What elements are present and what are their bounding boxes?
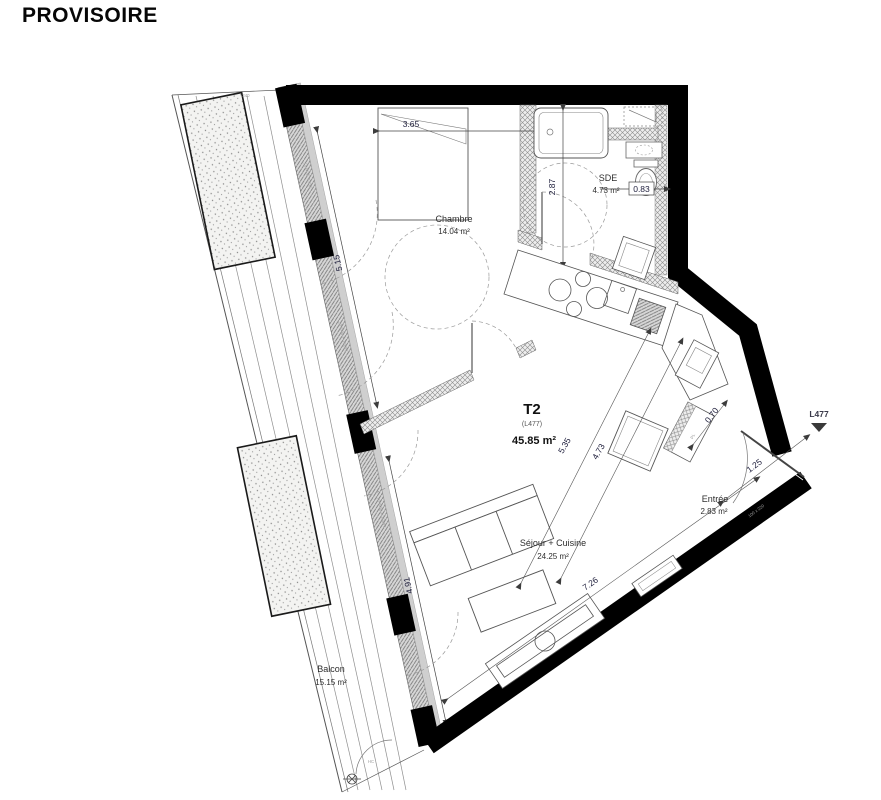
lot-marker-label: L477: [809, 409, 829, 419]
dim-3-65: 3.65: [403, 119, 420, 129]
entrance-area: 2.83 m²: [700, 507, 727, 516]
dim-5-15: 5.15: [331, 254, 344, 273]
balcony-planter-lower: [237, 436, 330, 617]
unit-lot: (L477): [522, 421, 542, 428]
dim-0-70: 0.70: [703, 405, 721, 424]
unit-type: T2: [523, 401, 541, 418]
sofa: [410, 484, 554, 585]
dim-2-87: 2.87: [547, 178, 557, 195]
entrance-name: Entrée: [702, 494, 729, 504]
coffee-table: [468, 570, 556, 632]
balcony-planter-upper: [181, 93, 275, 270]
sde-area: 4.73 m²: [592, 186, 619, 195]
partition-sde-inner: [600, 128, 658, 140]
floor-plan-page: PROVISOIRE: [0, 0, 881, 800]
washbasin: [626, 142, 662, 158]
bedroom-door-arc: [472, 321, 517, 350]
dim-4-91: 4.91: [401, 576, 414, 595]
entry-closet: [664, 402, 715, 462]
wardrobe-swing: [385, 225, 489, 329]
partition-bedroom-south-a: [360, 370, 474, 434]
living-area: 24.25 m²: [537, 552, 569, 561]
bedroom-area: 14.04 m²: [438, 227, 470, 236]
sde-name: SDE: [599, 173, 618, 183]
dim-4-73: 4.73: [590, 442, 607, 462]
unit-label: T2 (L477) 45.85 m²: [512, 401, 556, 447]
dining-table: [608, 411, 668, 471]
balcony-area: 15.15 m²: [315, 678, 347, 687]
bedroom-name: Chambre: [435, 214, 472, 224]
dim-7-26: 7.26: [581, 575, 600, 593]
living-name: Séjour + Cuisine: [520, 538, 586, 548]
sde-door-arc: [542, 192, 594, 258]
balcony-hc-label: HC: [368, 759, 374, 764]
entry-direction-icon: [811, 423, 827, 432]
floor-plan: 240 HC Balcon 15.15 m² VOUL 2cm 17 140SL…: [0, 0, 881, 800]
kitchen: [504, 236, 728, 400]
lot-marker: L477: [809, 409, 829, 432]
planter-dim-label: 240: [242, 93, 250, 98]
unit-area: 45.85 m²: [512, 435, 556, 447]
partition-bedroom-south-b: [516, 340, 536, 358]
shower-tray: [534, 108, 608, 158]
bed: [378, 108, 468, 220]
dim-0-83: 0.83: [633, 184, 650, 194]
balcony-name: Balcon: [317, 664, 345, 674]
wc-tank: [634, 160, 658, 167]
dim-5-35: 5.35: [556, 436, 573, 456]
